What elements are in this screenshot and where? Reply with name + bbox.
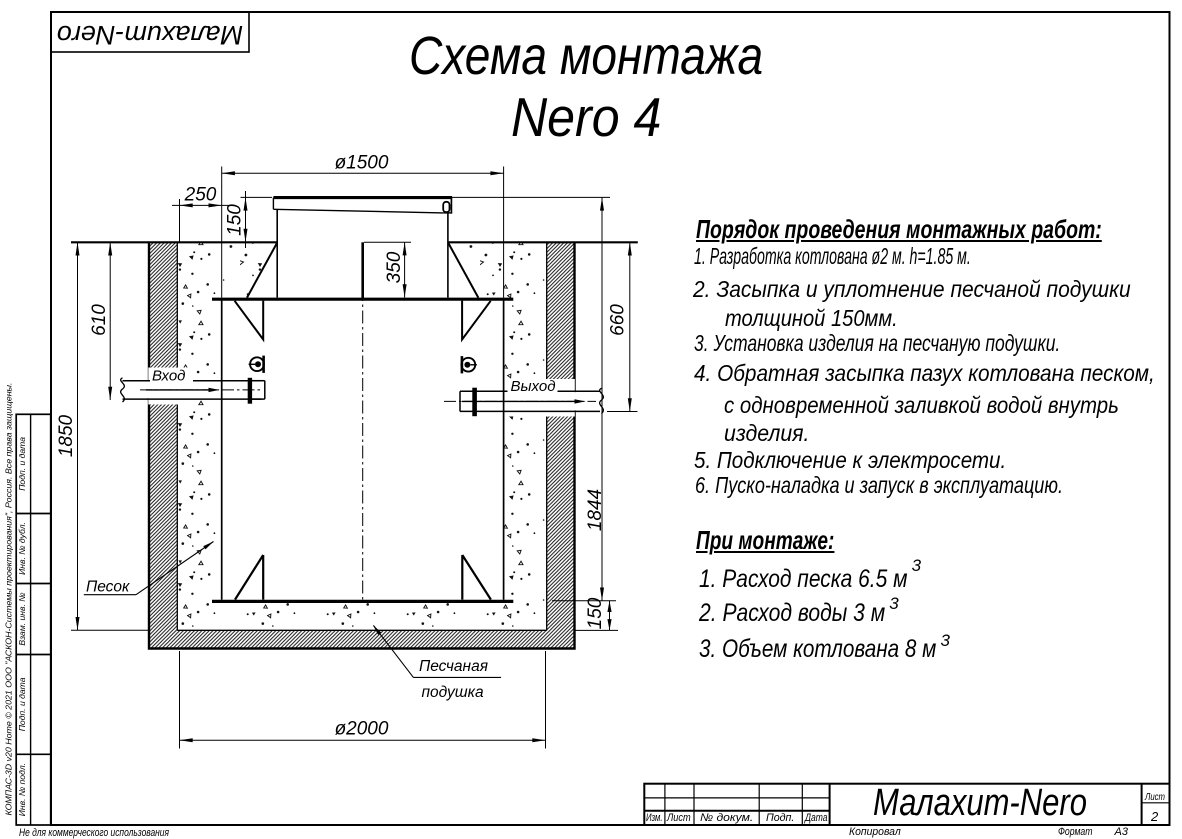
- svg-text:1850: 1850: [56, 414, 77, 457]
- svg-text:Песчаная: Песчаная: [419, 658, 488, 675]
- svg-text:610: 610: [89, 304, 110, 336]
- svg-text:Вход: Вход: [152, 367, 185, 384]
- svg-text:1844: 1844: [585, 489, 606, 531]
- svg-text:150: 150: [585, 597, 606, 629]
- svg-text:Взам. инв. №: Взам. инв. №: [17, 592, 27, 645]
- svg-text:Подп. и дата: Подп. и дата: [17, 677, 27, 731]
- svg-text:ø2000: ø2000: [335, 719, 389, 740]
- svg-text:150: 150: [225, 204, 246, 236]
- svg-text:Песок: Песок: [86, 579, 130, 596]
- svg-text:Малахит-Nero: Малахит-Nero: [57, 20, 243, 50]
- svg-text:подушка: подушка: [422, 684, 484, 701]
- svg-text:660: 660: [608, 304, 629, 336]
- svg-text:Инв. № подл.: Инв. № подл.: [17, 763, 27, 816]
- svg-text:ø1500: ø1500: [335, 153, 389, 174]
- svg-text:350: 350: [384, 251, 405, 283]
- svg-text:КОМПАС-3D v20 Home © 2021 ООО: КОМПАС-3D v20 Home © 2021 ООО "АСКОН-Сис…: [4, 383, 14, 816]
- svg-text:Выход: Выход: [511, 378, 556, 395]
- svg-text:Инв. № дубл.: Инв. № дубл.: [17, 522, 27, 575]
- svg-text:250: 250: [184, 184, 217, 205]
- svg-text:Подп. и дата: Подп. и дата: [17, 437, 27, 491]
